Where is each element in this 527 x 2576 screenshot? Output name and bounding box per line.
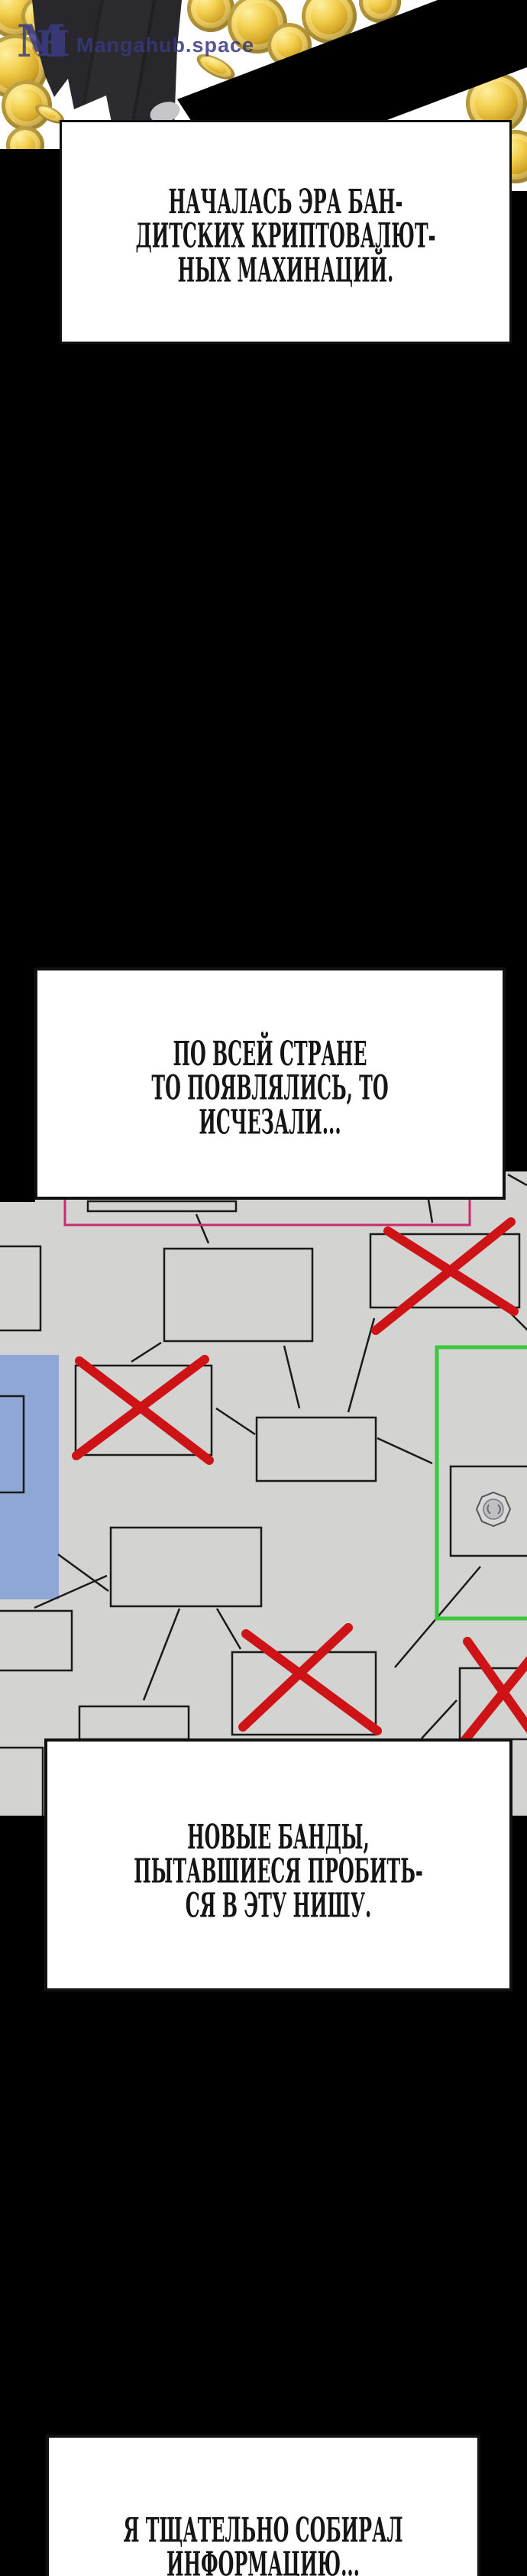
connector-line [508, 1175, 527, 1185]
caption-line: ТО ПОЯВЛЯЛИСЬ, ТО [107, 1072, 432, 1107]
diagram-box [88, 1201, 236, 1211]
connector-line [348, 1318, 374, 1412]
connector-line [216, 1408, 255, 1434]
watermark-site-text: Mangahub.space [76, 34, 254, 57]
black-patch [0, 1171, 35, 1202]
caption-text: ПО ВСЕЙ СТРАНЕ ТО ПОЯВЛЯЛИСЬ, ТО ИСЧЕЗАЛ… [107, 1038, 432, 1140]
mangahub-logo-icon: M H [17, 14, 70, 67]
caption-text: Я ТЩАТЕЛЬНО СОБИРАЛ ИНФОРМАЦИЮ... [113, 2514, 413, 2576]
caption-text: НОВЫЕ БАНДЫ, ПЫТАВШИЕСЯ ПРОБИТЬ- СЯ В ЭТ… [117, 1821, 441, 1923]
caption-box-4: Я ТЩАТЕЛЬНО СОБИРАЛ ИНФОРМАЦИЮ... [46, 2435, 480, 2576]
caption-box-3: НОВЫЕ БАНДЫ, ПЫТАВШИЕСЯ ПРОБИТЬ- СЯ В ЭТ… [44, 1738, 512, 1991]
connector-line [144, 1609, 179, 1700]
caption-line: ИСЧЕЗАЛИ... [107, 1107, 432, 1141]
connector-line [377, 1438, 432, 1463]
left-corner-shadow [0, 149, 61, 191]
caption-box-1: НАЧАЛАСЬ ЭРА БАН- ДИТСКИХ КРИПТОВАЛЮТ- Н… [60, 120, 512, 344]
caption-line: Я ТЩАТЕЛЬНО СОБИРАЛ [113, 2514, 413, 2548]
caption-line: ИНФОРМАЦИЮ... [113, 2548, 413, 2576]
connector-line [217, 1609, 241, 1649]
manga-page: M H Mangahub.space [0, 0, 527, 2576]
coin-icon [477, 1492, 510, 1526]
caption-line: ПО ВСЕЙ СТРАНЕ [107, 1038, 432, 1072]
connector-line [428, 1200, 432, 1223]
connector-line [284, 1346, 299, 1408]
diagram-box [0, 1748, 43, 1816]
caption-line: НОВЫЕ БАНДЫ, [117, 1821, 441, 1855]
diagram-box [257, 1418, 376, 1481]
connector-line [196, 1214, 209, 1243]
diagram-box [79, 1706, 189, 1739]
caption-line: НЫХ МАХИНАЦИЙ. [129, 254, 442, 289]
caption-line: ПЫТАВШИЕСЯ ПРОБИТЬ- [117, 1855, 441, 1890]
diagram-box [0, 1246, 40, 1330]
caption-line: ДИТСКИХ КРИПТОВАЛЮТ- [129, 220, 442, 254]
diagram-graphic [0, 1171, 527, 1816]
caption-text: НАЧАЛАСЬ ЭРА БАН- ДИТСКИХ КРИПТОВАЛЮТ- Н… [129, 186, 442, 288]
caption-line: НАЧАЛАСЬ ЭРА БАН- [129, 186, 442, 220]
diagram-box [111, 1528, 261, 1606]
caption-box-2: ПО ВСЕЙ СТРАНЕ ТО ПОЯВЛЯЛИСЬ, ТО ИСЧЕЗАЛ… [34, 967, 506, 1200]
connector-line [131, 1343, 161, 1362]
caption-line: СЯ В ЭТУ НИШУ. [117, 1890, 441, 1924]
network-diagram-panel [0, 1171, 527, 1816]
connector-line [422, 1700, 457, 1738]
blue-highlight-box [0, 1355, 59, 1599]
diagram-box [164, 1249, 312, 1341]
diagram-box [0, 1611, 72, 1670]
logo-letter: H [37, 23, 70, 64]
